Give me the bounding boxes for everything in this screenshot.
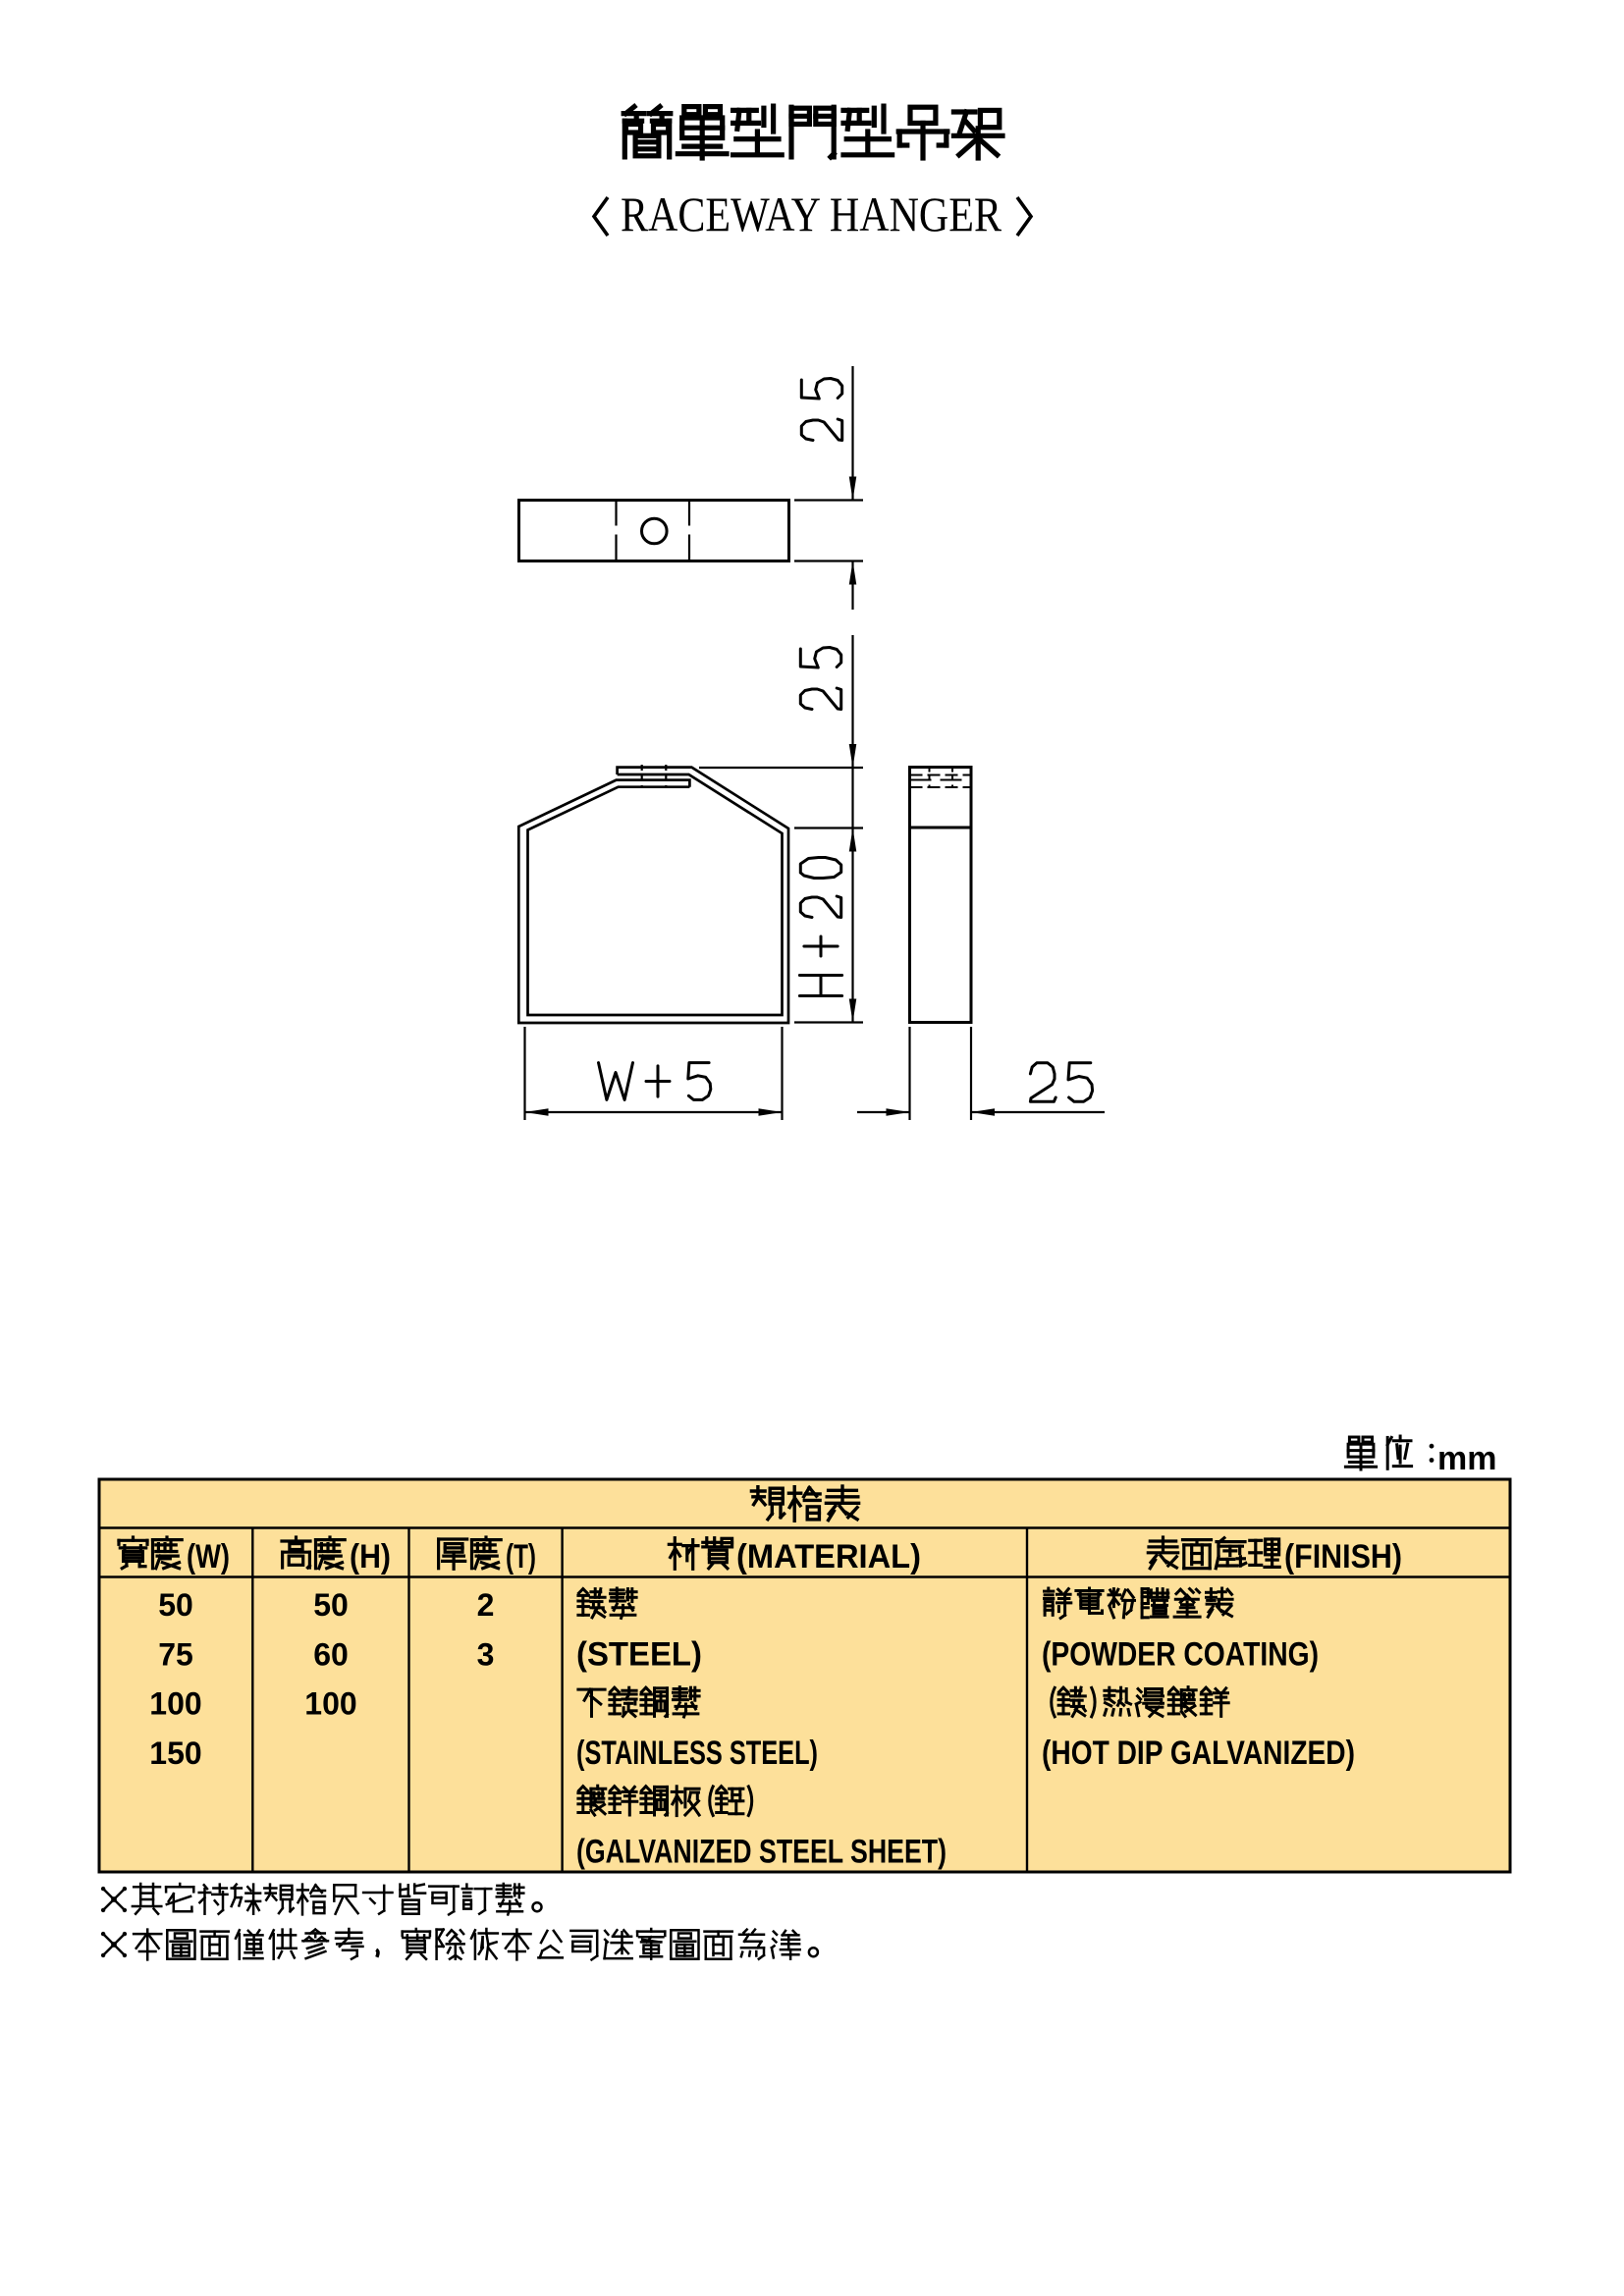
svg-text:RACEWAY HANGER: RACEWAY HANGER: [621, 187, 1002, 241]
svg-text:100: 100: [304, 1686, 356, 1722]
svg-text:(STEEL): (STEEL): [576, 1635, 702, 1673]
svg-text:mm: mm: [1437, 1440, 1496, 1477]
svg-text:(FINISH): (FINISH): [1284, 1538, 1402, 1575]
svg-text:(HOT DIP GALVANIZED): (HOT DIP GALVANIZED): [1042, 1735, 1355, 1772]
svg-text:150: 150: [149, 1735, 201, 1771]
svg-text:2: 2: [477, 1587, 495, 1623]
svg-text:50: 50: [313, 1587, 349, 1623]
svg-text:(STAINLESS STEEL): (STAINLESS STEEL): [576, 1735, 818, 1772]
svg-text:(POWDER COATING): (POWDER COATING): [1042, 1635, 1319, 1673]
svg-text:100: 100: [149, 1686, 201, 1722]
svg-text:(MATERIAL): (MATERIAL): [736, 1538, 921, 1575]
svg-text:60: 60: [313, 1636, 349, 1672]
svg-text:(W): (W): [187, 1538, 230, 1575]
svg-text:75: 75: [158, 1636, 193, 1672]
svg-text:(GALVANIZED STEEL SHEET): (GALVANIZED STEEL SHEET): [576, 1834, 947, 1871]
svg-text:(H): (H): [350, 1538, 391, 1575]
svg-text:50: 50: [158, 1587, 193, 1623]
svg-text:3: 3: [477, 1636, 495, 1672]
svg-text:(T): (T): [506, 1538, 536, 1575]
